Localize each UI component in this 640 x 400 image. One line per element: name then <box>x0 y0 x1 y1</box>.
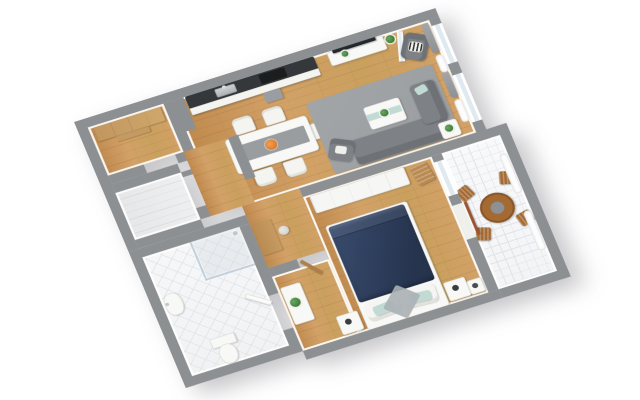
floor-plan-render <box>0 0 640 400</box>
apartment-3d-plan <box>74 2 571 397</box>
wall-left-balcony-right-seg <box>181 169 193 177</box>
armchair-white-pillow <box>335 145 348 154</box>
striped-pillow <box>408 42 422 52</box>
